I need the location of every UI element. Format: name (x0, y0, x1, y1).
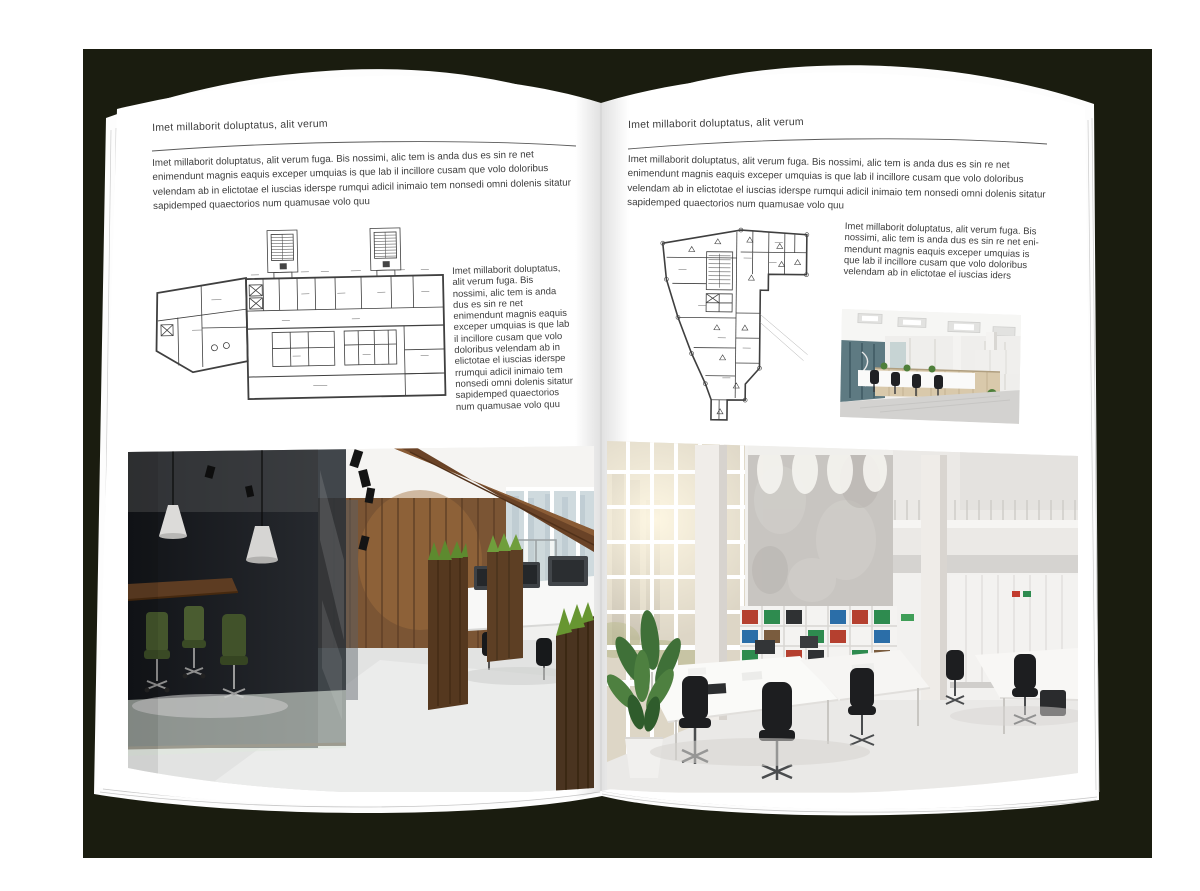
book-mockup-scene: Imet millaborit doluptatus, alit verum I… (0, 0, 1200, 891)
left-page-intro-paragraph: Imet millaborit doluptatus, alit verum f… (152, 147, 585, 214)
left-page-photo (128, 446, 594, 792)
right-page-photo-small (840, 308, 1021, 424)
right-page-photo-large (535, 400, 1090, 793)
right-page-caption-column: Imet millaborit doluptatus, alit verum f… (843, 221, 1041, 283)
book-mockup-graphic (0, 0, 1200, 891)
exit-sign (901, 614, 914, 621)
right-page-intro-paragraph: Imet millaborit doluptatus, alit verum f… (627, 153, 1060, 217)
left-page-caption-column: Imet millaborit doluptatus, alit verum f… (452, 263, 574, 413)
